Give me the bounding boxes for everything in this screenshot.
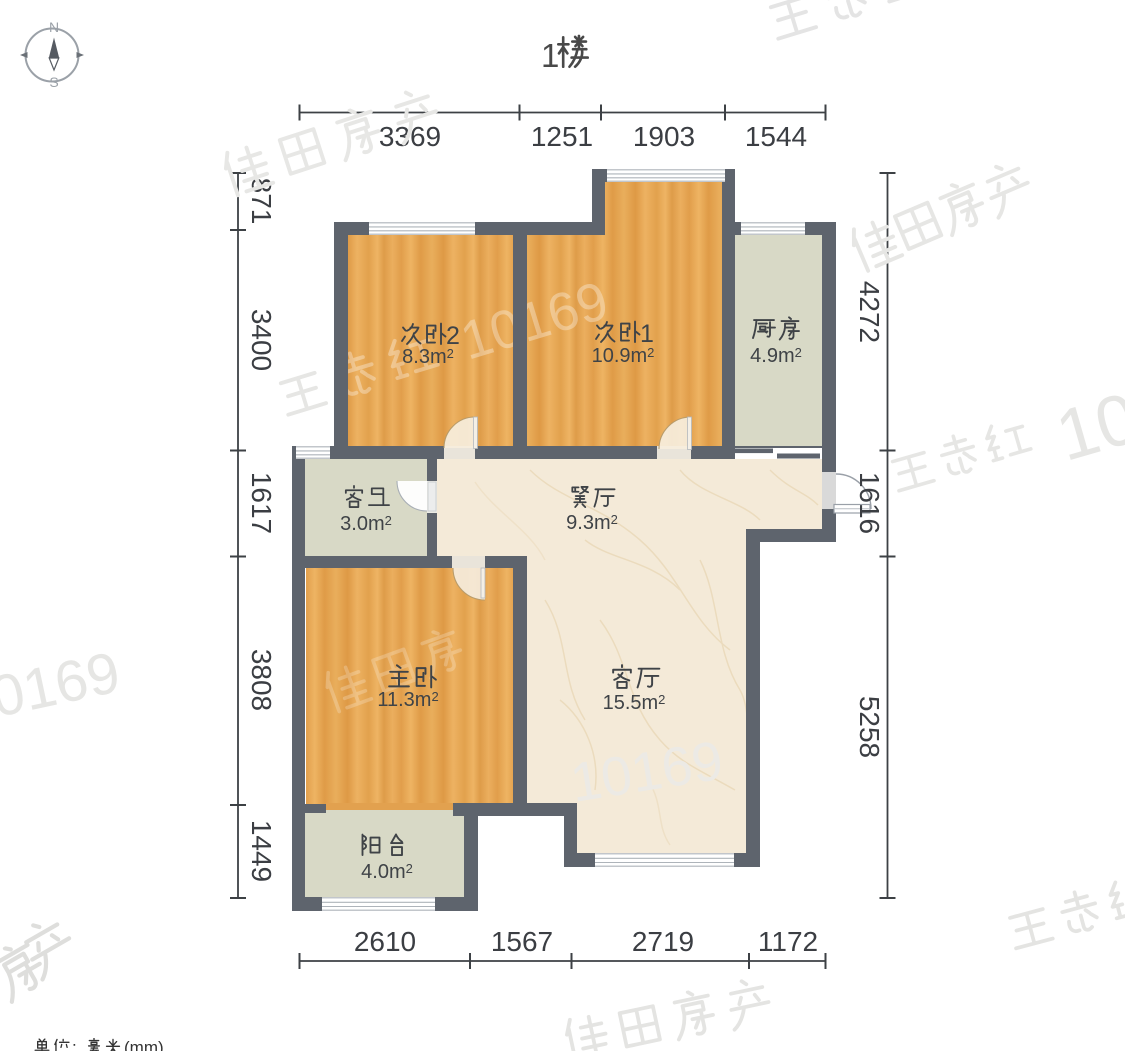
svg-text:3808: 3808 xyxy=(246,649,277,711)
svg-text:1: 1 xyxy=(541,37,559,74)
svg-text:9.3m2: 9.3m2 xyxy=(566,512,618,534)
svg-text:2719: 2719 xyxy=(632,926,694,957)
svg-text:1172: 1172 xyxy=(758,926,818,957)
svg-text:1617: 1617 xyxy=(246,472,277,534)
svg-text:4272: 4272 xyxy=(854,281,885,343)
svg-text:(mm): (mm) xyxy=(124,1038,164,1051)
svg-text:2610: 2610 xyxy=(354,926,416,957)
svg-text:15.5m2: 15.5m2 xyxy=(603,692,666,714)
svg-text::: : xyxy=(72,1038,77,1051)
svg-text:10.9m2: 10.9m2 xyxy=(592,345,655,367)
svg-text:11.3m2: 11.3m2 xyxy=(377,689,438,711)
svg-text:N: N xyxy=(49,19,59,35)
svg-text:8.3m2: 8.3m2 xyxy=(402,346,454,368)
svg-text:5258: 5258 xyxy=(854,696,885,758)
svg-text:1: 1 xyxy=(640,320,654,348)
svg-text:3400: 3400 xyxy=(246,309,277,371)
svg-text:1616: 1616 xyxy=(854,472,885,534)
svg-text:4.9m2: 4.9m2 xyxy=(750,345,802,367)
svg-text:1903: 1903 xyxy=(633,121,695,152)
svg-text:1251: 1251 xyxy=(531,121,593,152)
svg-text:S: S xyxy=(49,74,58,90)
svg-text:3.0m2: 3.0m2 xyxy=(340,513,392,535)
svg-text:1544: 1544 xyxy=(745,121,807,152)
svg-text:1567: 1567 xyxy=(491,926,553,957)
svg-text:4.0m2: 4.0m2 xyxy=(361,861,413,883)
svg-text:1449: 1449 xyxy=(246,820,277,882)
